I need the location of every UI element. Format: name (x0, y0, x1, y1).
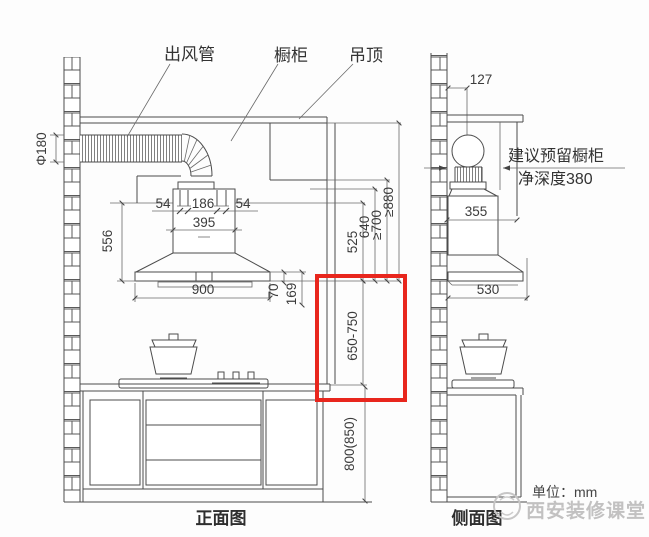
footer: 单位：mm 西安装修课堂 (494, 484, 646, 522)
dim-355: 355 (465, 204, 488, 219)
dim-height-stack: 525 640 ≥700 ≥880 (345, 123, 399, 281)
dim-counter-height: 800(850) (342, 387, 365, 501)
watermark-logo-strokes (500, 497, 514, 515)
dim-hole-left: 54 (155, 196, 171, 211)
callout-cabinet-label: 橱柜 (274, 46, 308, 65)
brick-wall-left (64, 57, 80, 502)
duct-elbow (178, 134, 214, 189)
base-cabinet-front (64, 391, 372, 502)
callout-ceiling-label: 吊顶 (349, 46, 383, 65)
dim-70: 70 (266, 283, 281, 298)
unit-note: 单位：mm (532, 484, 597, 500)
cooktop-front (119, 334, 268, 388)
kitchen-hood-installation-diagram: 54 186 54 395 900 556 70 169 (0, 0, 649, 537)
dim-800-850: 800(850) (342, 417, 357, 471)
dim-hole-center: 186 (192, 196, 215, 211)
depth-note-line2: 净深度380 (518, 170, 593, 188)
dim-hole-pitch: 54 186 54 (152, 196, 258, 214)
side-view: 127 建议预留橱柜 净深度380 (424, 53, 625, 528)
dim-lip-group: 70 169 (266, 272, 306, 305)
diagram-canvas: 54 186 54 395 900 556 70 169 (0, 0, 649, 537)
watermark-text: 西安装修课堂 (526, 499, 646, 522)
exhaust-duct (80, 135, 182, 162)
dim-556: 556 (100, 230, 115, 253)
dim-body-width-text: 395 (193, 215, 216, 230)
dim-phi180: Φ180 (34, 132, 49, 165)
brick-wall-right (431, 53, 447, 502)
depth-note-line1: 建议预留橱柜 (508, 147, 604, 165)
cooktop-side (452, 334, 514, 388)
front-view-caption: 正面图 (196, 509, 247, 528)
ceiling-plate (80, 117, 327, 123)
dim-880: ≥880 (381, 187, 396, 217)
dim-169: 169 (284, 283, 299, 306)
duct-section-side (450, 135, 486, 189)
pot-front (150, 334, 197, 378)
dim-650-750: 650-750 (345, 311, 360, 361)
dim-hood-to-counter: 650-750 (345, 281, 363, 385)
dim-hood-width-text: 900 (192, 282, 215, 297)
highlight-box (317, 276, 405, 400)
dim-127: 127 (470, 72, 493, 87)
dim-530: 530 (477, 282, 500, 297)
dim-hole-right: 54 (235, 196, 251, 211)
callouts: 出风管 橱柜 吊顶 (127, 45, 383, 141)
dim-hood-width: 900 (135, 282, 270, 302)
dim-body-height: 556 (100, 203, 136, 281)
callout-duct-label: 出风管 (164, 45, 215, 64)
dim-duct-diameter: Φ180 (34, 132, 64, 165)
front-view: 54 186 54 395 900 556 70 169 (34, 45, 401, 528)
pot-side (460, 334, 507, 378)
